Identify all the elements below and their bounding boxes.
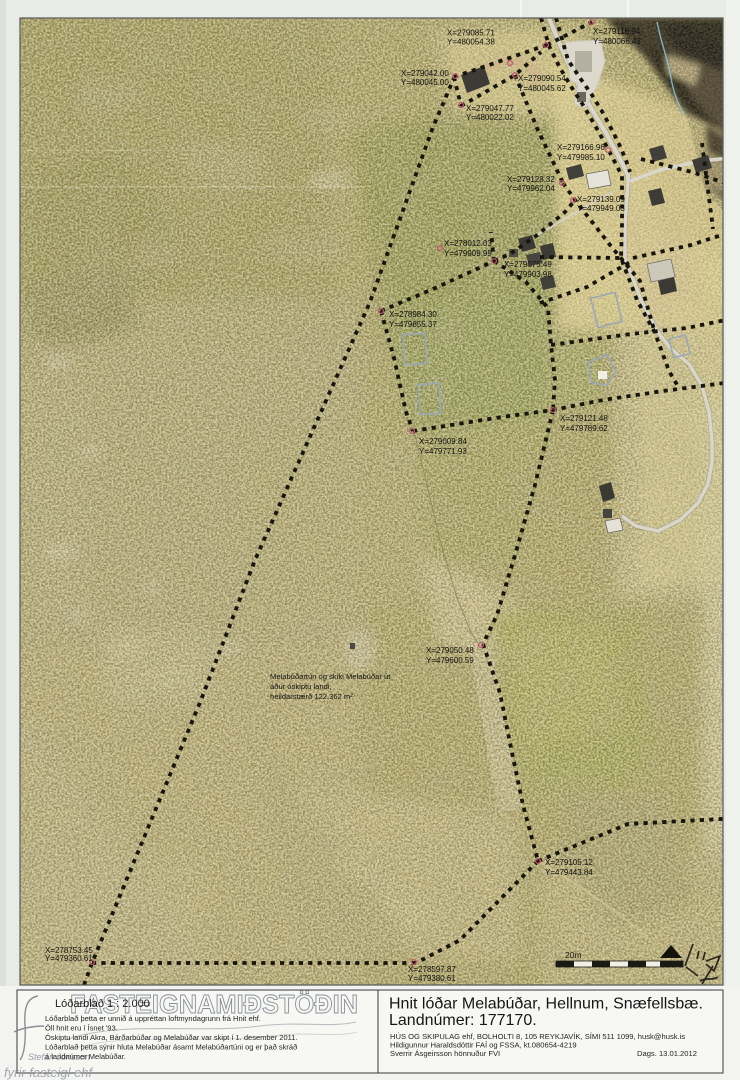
svg-text:X=279085.71: X=279085.71 <box>447 29 495 38</box>
svg-text:Y=479909.99: Y=479909.99 <box>444 249 492 258</box>
svg-text:Lóðarblað þetta sýnir hluta Me: Lóðarblað þetta sýnir hluta Melabúðar ás… <box>45 1043 297 1052</box>
svg-text:fyrir fasteigl ehf: fyrir fasteigl ehf <box>4 1065 94 1080</box>
svg-text:X=279128.32: X=279128.32 <box>507 175 555 184</box>
svg-text:Dags. 13.01.2012: Dags. 13.01.2012 <box>637 1049 697 1058</box>
svg-text:Öll hnit eru í Ísnet '93.: Öll hnit eru í Ísnet '93. <box>45 1024 118 1033</box>
svg-text:X=279090.54: X=279090.54 <box>518 74 566 83</box>
svg-text:Y=479360.61: Y=479360.61 <box>45 954 93 963</box>
svg-text:Lóðarblað 1 : 2.000: Lóðarblað 1 : 2.000 <box>55 998 150 1010</box>
svg-text:á landnúmer Melabúðar.: á landnúmer Melabúðar. <box>45 1052 126 1061</box>
svg-text:X=279050.48: X=279050.48 <box>426 646 474 655</box>
svg-text:Y=479962.04: Y=479962.04 <box>507 184 555 193</box>
svg-text:X=278984.30: X=278984.30 <box>389 310 437 319</box>
svg-text:heildarstærð 122.362 m²: heildarstærð 122.362 m² <box>270 692 353 701</box>
svg-text:Óskiptu landi Akra, Bárðarbúða: Óskiptu landi Akra, Bárðarbúðar og Melab… <box>45 1033 298 1042</box>
svg-text:X=278597.87: X=278597.87 <box>408 965 456 974</box>
svg-text:Landnúmer: 177170.: Landnúmer: 177170. <box>389 1012 537 1029</box>
svg-text:X=279009.84: X=279009.84 <box>419 437 467 446</box>
svg-text:20m: 20m <box>565 950 582 960</box>
svg-text:X=279105.12: X=279105.12 <box>545 858 593 867</box>
svg-text:Y=480022.02: Y=480022.02 <box>466 113 514 122</box>
svg-text:Sverrir Ásgeirsson hönnuður FV: Sverrir Ásgeirsson hönnuður FVI <box>390 1049 500 1058</box>
svg-text:Y=479855.37: Y=479855.37 <box>389 320 437 329</box>
svg-text:X=279121.48: X=279121.48 <box>560 414 608 423</box>
svg-text:Melabúðartún og skiki Melabúða: Melabúðartún og skiki Melabúðar út <box>270 672 391 681</box>
svg-text:X=279116.94: X=279116.94 <box>593 27 641 36</box>
svg-text:Y=479600.59: Y=479600.59 <box>426 656 474 665</box>
svg-text:Lóðarblað þetta er unnið á upp: Lóðarblað þetta er unnið á uppréttan lof… <box>45 1014 261 1023</box>
svg-text:X=278012.03: X=278012.03 <box>444 239 492 248</box>
svg-text:X=279047.77: X=279047.77 <box>466 104 514 113</box>
svg-text:áður óskiptu landi,: áður óskiptu landi, <box>270 682 332 691</box>
svg-text:Y=479985.10: Y=479985.10 <box>557 153 605 162</box>
svg-text:Y=480054.38: Y=480054.38 <box>447 38 495 47</box>
svg-text:Y=479903.98: Y=479903.98 <box>504 270 552 279</box>
svg-text:Y=480045.62: Y=480045.62 <box>518 84 566 93</box>
svg-text:Hnit lóðar Melabúðar, Hellnum,: Hnit lóðar Melabúðar, Hellnum, Snæfellsb… <box>389 996 703 1013</box>
svg-text:Y=479380.61: Y=479380.61 <box>408 974 456 983</box>
svg-text:Y=480045.00: Y=480045.00 <box>401 78 449 87</box>
svg-text:Y=479789.62: Y=479789.62 <box>560 424 608 433</box>
svg-text:X=279042.00: X=279042.00 <box>401 69 449 78</box>
svg-text:Y=480066.43: Y=480066.43 <box>593 37 641 46</box>
svg-text:X=279166.96: X=279166.96 <box>557 143 605 152</box>
svg-text:Y=479771.93: Y=479771.93 <box>419 447 467 456</box>
svg-text:Y=479443.84: Y=479443.84 <box>545 868 593 877</box>
svg-text:X=279139.09: X=279139.09 <box>577 195 625 204</box>
svg-text:Y=479949.03: Y=479949.03 <box>577 204 625 213</box>
svg-text:X=279075.49: X=279075.49 <box>504 260 552 269</box>
